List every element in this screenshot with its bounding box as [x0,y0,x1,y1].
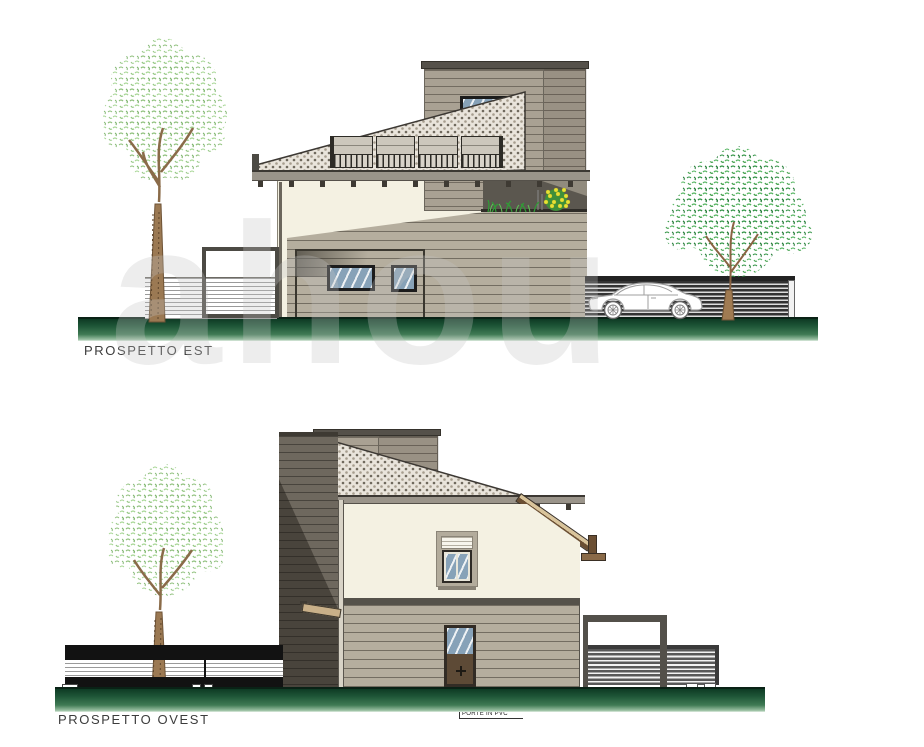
window-pane [458,554,468,579]
dark-side-volume [279,432,338,690]
roof-ovest [313,432,529,500]
slat-fence-gray [583,645,719,685]
tree-dark-est [642,142,822,322]
tree-canopy [103,38,227,180]
fence-top-band [65,645,283,660]
ground-strip-ovest [55,687,765,712]
tree-trunk [722,290,734,320]
pergola-top-bar [583,615,667,622]
roller-shutter-box [441,536,473,549]
car-wheel [605,302,622,319]
tree-light-est [85,32,245,324]
pvc-door [444,625,476,687]
tree-canopy [664,146,812,277]
drawing-canvas: PROSPETTO EST [0,0,924,747]
door-glass [447,628,473,654]
eave-fascia-ovest [313,495,585,504]
fence-post [715,645,719,685]
leader-line-horizontal [459,718,523,719]
eave-bracket-foot [581,553,606,561]
window-sill [438,586,476,590]
elevation-ovest-label: PROSPETTO OVEST [58,712,210,727]
pergola-right-post [660,615,667,689]
window-ovest [442,550,472,583]
tree-canopy [108,464,224,596]
pergola-left-post [583,615,588,689]
fence-bottom-band [65,677,283,687]
door-handle [456,670,466,672]
window-pane [446,554,456,579]
floor-slab-band [344,598,580,605]
fence-divider [204,652,206,686]
